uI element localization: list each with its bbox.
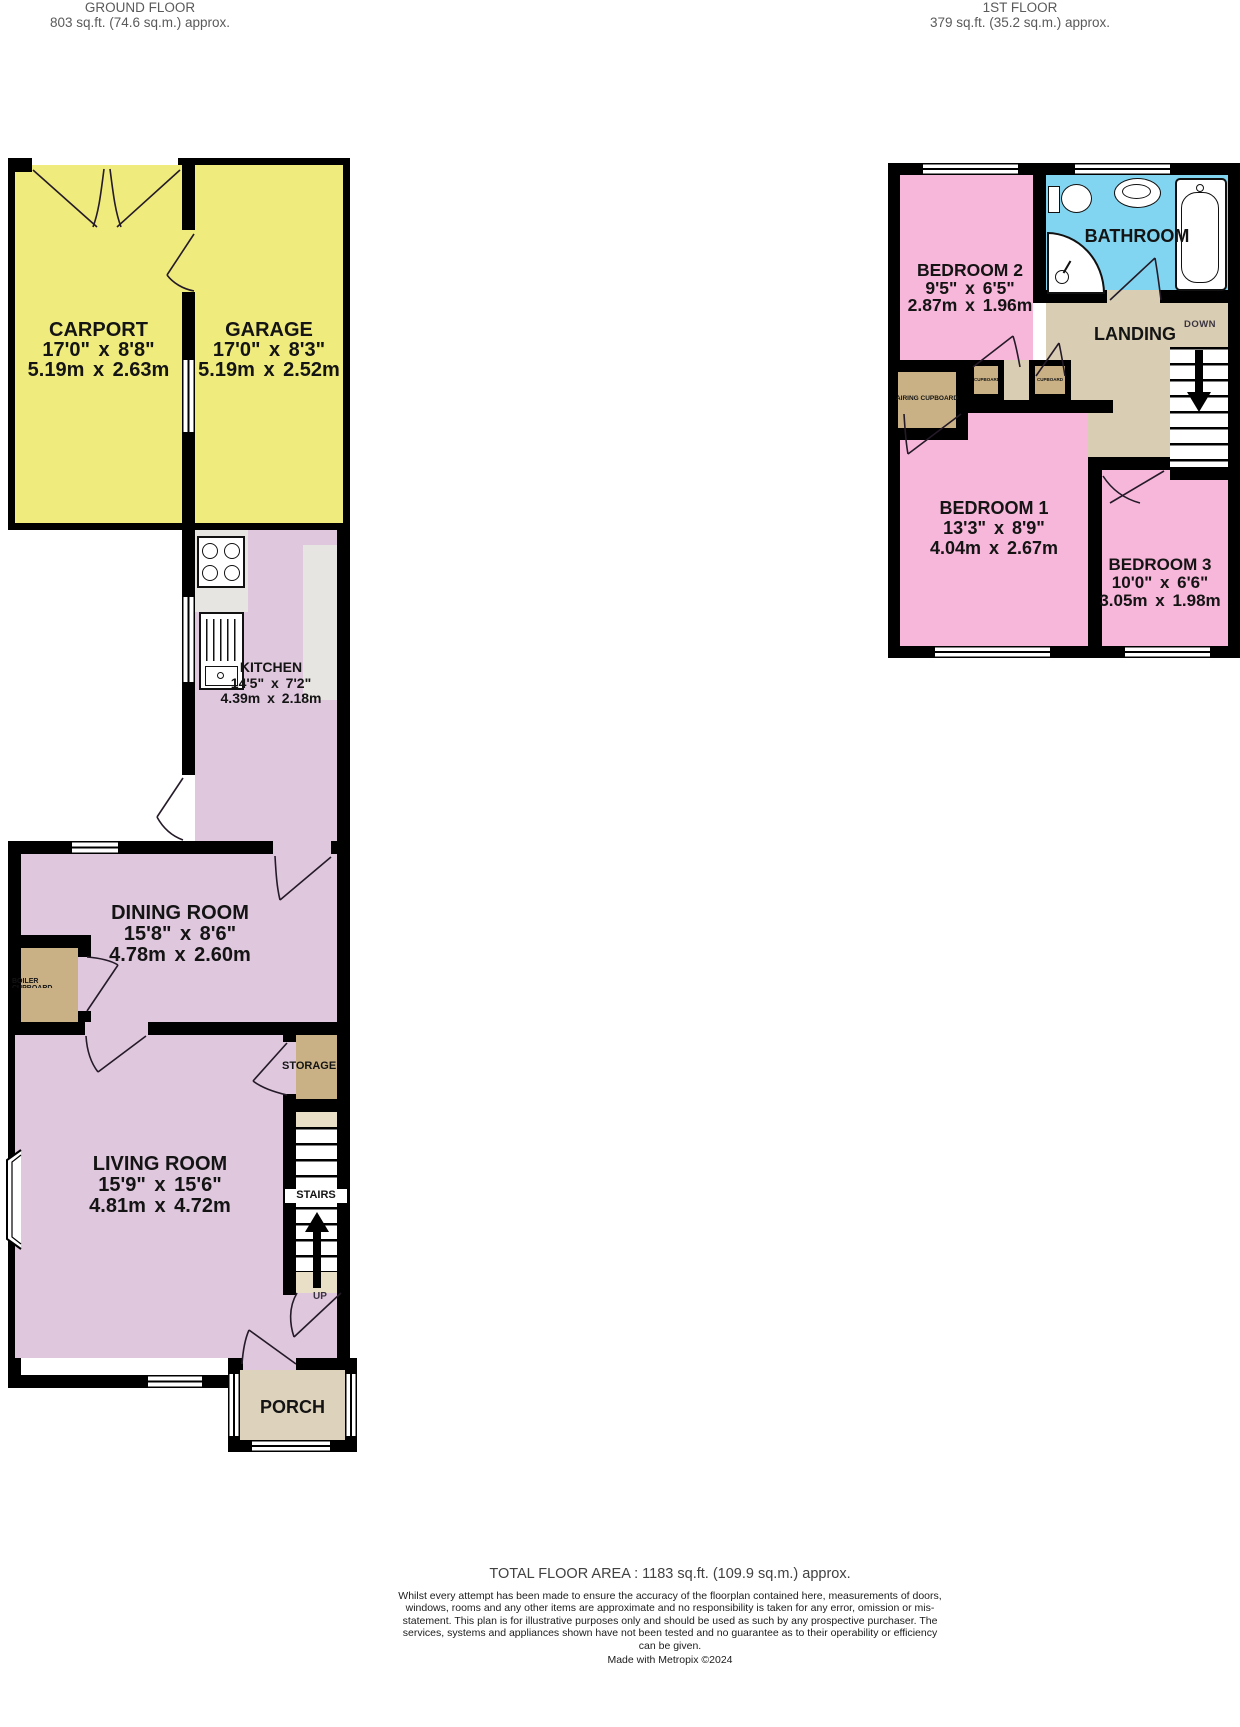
door-opening xyxy=(182,230,195,292)
room-dims-metric: 4.04m x 2.67m xyxy=(900,538,1088,558)
dining-room-label: DINING ROOM 15'8" x 8'6" 4.78m x 2.60m xyxy=(15,903,345,966)
window xyxy=(228,1374,240,1436)
room-name: DINING ROOM xyxy=(15,903,345,924)
room-dims-metric: 4.81m x 4.72m xyxy=(15,1196,305,1217)
room-dims-metric: 5.19m x 2.52m xyxy=(195,360,343,380)
floorplan-canvas: GROUND FLOOR 803 sq.ft. (74.6 sq.m.) app… xyxy=(0,0,1240,1727)
room-dims-imperial: 14'5" x 7'2" xyxy=(195,676,347,692)
toilet-icon xyxy=(1061,184,1092,213)
wall xyxy=(1170,467,1228,480)
room-name: BEDROOM 3 xyxy=(1090,556,1230,574)
sink-drainer xyxy=(206,619,237,661)
garage-label: GARAGE 17'0" x 8'3" 5.19m x 2.52m xyxy=(195,320,343,380)
wall xyxy=(1088,457,1102,646)
storage-label: STORAGE xyxy=(282,1060,338,1074)
ground-floor-header: GROUND FLOOR 803 sq.ft. (74.6 sq.m.) app… xyxy=(0,0,280,30)
airing-cupboard-label: AIRING CUPBOARD xyxy=(890,395,964,404)
cupboard-label: CUPBOARD xyxy=(974,377,998,384)
hob-burner xyxy=(202,543,218,559)
window xyxy=(182,360,195,432)
hob-icon xyxy=(197,536,245,588)
hob-burner xyxy=(202,565,218,581)
window xyxy=(923,163,1018,175)
bathtub-tap xyxy=(1196,184,1204,192)
room-dims-imperial: 15'9" x 15'6" xyxy=(15,1175,305,1196)
wall xyxy=(963,400,1113,413)
kitchen-label: KITCHEN 14'5" x 7'2" 4.39m x 2.18m xyxy=(195,660,347,707)
door-opening xyxy=(182,775,195,841)
window xyxy=(72,841,118,854)
wall-carport-garage-divider xyxy=(182,158,195,530)
living-room-label: LIVING ROOM 15'9" x 15'6" 4.81m x 4.72m xyxy=(15,1154,305,1217)
room-name: KITCHEN xyxy=(195,660,347,676)
up-arrow-stem xyxy=(313,1230,321,1288)
bathroom-label: BATHROOM xyxy=(1046,227,1228,246)
metropix-credit: Made with Metropix ©2024 xyxy=(395,1654,945,1666)
room-name: BATHROOM xyxy=(1046,227,1228,246)
wall xyxy=(1088,457,1170,470)
down-arrow-icon xyxy=(1187,392,1211,412)
stair-landing-strip xyxy=(296,1112,337,1127)
landing-label: LANDING xyxy=(1046,325,1224,344)
carport-label: CARPORT 17'0" x 8'8" 5.19m x 2.63m xyxy=(15,320,182,380)
wall xyxy=(283,1099,337,1112)
room-name: BEDROOM 2 xyxy=(888,262,1052,280)
ground-floor-title: GROUND FLOOR xyxy=(0,0,280,15)
room-name: BEDROOM 1 xyxy=(900,498,1088,518)
room-dims-metric: 5.19m x 2.63m xyxy=(15,360,182,380)
room-name: CARPORT xyxy=(15,320,182,340)
window xyxy=(148,1375,202,1388)
disclaimer-text: Whilst every attempt has been made to en… xyxy=(395,1590,945,1652)
hob-burner xyxy=(224,565,240,581)
down-arrow-stem xyxy=(1195,350,1203,394)
room-dims-imperial: 10'0" x 6'6" xyxy=(1090,574,1230,592)
bedroom-1-label: BEDROOM 1 13'3" x 8'9" 4.04m x 2.67m xyxy=(900,498,1088,558)
door-opening xyxy=(243,1358,296,1370)
total-floor-area: TOTAL FLOOR AREA : 1183 sq.ft. (109.9 sq… xyxy=(340,1566,1000,1582)
window xyxy=(252,1440,330,1452)
room-dims-imperial: 13'3" x 8'9" xyxy=(900,518,1088,538)
bedroom-2-label: BEDROOM 2 9'5" x 6'5" 2.87m x 1.96m xyxy=(888,262,1052,315)
boiler-cupboard-label: BOILER CUPBOARD xyxy=(12,978,76,988)
toilet-cistern-icon xyxy=(1048,186,1060,213)
door-opening xyxy=(85,1022,148,1035)
wall xyxy=(8,1022,350,1035)
window xyxy=(182,597,195,682)
room-dims-imperial: 17'0" x 8'3" xyxy=(195,340,343,360)
hob-burner xyxy=(224,543,240,559)
stairs-up-label: UP xyxy=(300,1291,340,1304)
bedroom-3-label: BEDROOM 3 10'0" x 6'6" 3.05m x 1.98m xyxy=(1090,556,1230,610)
ground-floor-area: 803 sq.ft. (74.6 sq.m.) approx. xyxy=(0,15,280,30)
window xyxy=(1075,163,1170,175)
room-dims-metric: 4.78m x 2.60m xyxy=(15,945,345,966)
room-name: LANDING xyxy=(1046,325,1224,344)
first-floor-title: 1ST FLOOR xyxy=(880,0,1160,15)
room-dims-metric: 4.39m x 2.18m xyxy=(195,691,347,707)
window xyxy=(1125,646,1210,658)
door-opening xyxy=(1004,360,1029,400)
carport-front-opening xyxy=(30,158,178,165)
first-floor-area: 379 sq.ft. (35.2 sq.m.) approx. xyxy=(880,15,1160,30)
room-dims-imperial: 15'8" x 8'6" xyxy=(15,924,345,945)
basin-icon xyxy=(1114,178,1161,208)
wall xyxy=(1160,290,1228,303)
cupboard-label: CUPBOARD xyxy=(1035,377,1065,384)
porch-label: PORCH xyxy=(240,1398,345,1417)
room-dims-metric: 3.05m x 1.98m xyxy=(1090,592,1230,610)
up-arrow-icon xyxy=(305,1212,329,1232)
room-name: LIVING ROOM xyxy=(15,1154,305,1175)
window xyxy=(345,1374,357,1436)
room-dims-metric: 2.87m x 1.96m xyxy=(888,297,1052,315)
wall xyxy=(8,158,32,172)
door-opening xyxy=(273,841,331,854)
window xyxy=(935,646,1050,658)
basin-bowl xyxy=(1122,184,1151,199)
room-name: GARAGE xyxy=(195,320,343,340)
room-dims-imperial: 17'0" x 8'8" xyxy=(15,340,182,360)
wall xyxy=(8,1375,240,1388)
room-name: PORCH xyxy=(240,1398,345,1417)
first-floor-header: 1ST FLOOR 379 sq.ft. (35.2 sq.m.) approx… xyxy=(880,0,1160,30)
